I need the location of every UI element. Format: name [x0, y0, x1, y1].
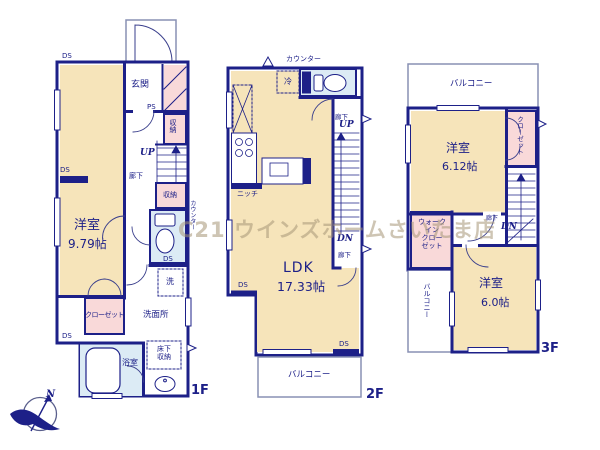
- f3-room2-size-label: 6.0帖: [481, 297, 510, 310]
- f2-ldk-label: LDK: [283, 260, 314, 276]
- f1-underfloor-label: 床下 収納: [148, 345, 180, 361]
- f3-vent-mark: [538, 120, 546, 128]
- f1-room-size-label: 9.79帖: [68, 238, 107, 252]
- f2-hall-lower-label: 廊下: [338, 252, 351, 259]
- f1-ds-mid-label: DS: [60, 166, 70, 174]
- f1-genkan-label: 玄関: [131, 80, 149, 90]
- bathtub: [86, 348, 120, 393]
- f2-balcony-label: バルコニー: [288, 371, 330, 381]
- f3-balcony-left-label: バルコニー: [423, 283, 431, 345]
- f2-up-label: UP: [339, 120, 354, 130]
- floor-plan-image: C21 ウインズホームさいたま店 DS 玄関 PS 収納 UP 廊下 DS 収納…: [0, 0, 600, 450]
- entrance-porch: [126, 20, 176, 64]
- f3-room2-label: 洋室: [479, 277, 503, 291]
- f3-room1-label: 洋室: [446, 142, 470, 156]
- f1-closet-label: クローゼット: [85, 311, 124, 319]
- f1-floor-label: 1F: [191, 384, 209, 399]
- f1-ds-bottom-label: DS: [62, 332, 72, 340]
- f1-bath-label: 浴室: [122, 358, 138, 367]
- f3-room1-size-label: 6.12帖: [442, 161, 478, 174]
- f1-vent-mark: [187, 344, 196, 352]
- f1-room-label: 洋室: [74, 219, 100, 234]
- f2-toilet-fixture: [314, 75, 346, 92]
- f1-laundry-label: 洗: [166, 277, 174, 286]
- f1-ds-toilet-label: DS: [163, 255, 173, 263]
- f2-niche-label: ニッチ: [237, 190, 258, 198]
- f3-hall-label: 廊下: [486, 216, 498, 223]
- f2-fridge-label: 冷: [284, 77, 292, 86]
- f2-dn-label: DN: [337, 234, 353, 244]
- f1-storage-upper-label: 収納: [169, 119, 177, 143]
- f3-closet-label: クローゼット: [515, 116, 522, 164]
- f1-washroom-label: 洗面所: [143, 311, 169, 321]
- f2-toilet-cabinet: [302, 72, 311, 94]
- f1-ds-duct: [60, 176, 88, 183]
- f1-shoe-area: [164, 65, 186, 111]
- f3-dn-label: DN: [501, 222, 517, 232]
- f2-floor-label: 2F: [366, 388, 384, 403]
- f1-up-label: UP: [140, 148, 155, 158]
- f1-hall-label: 廊下: [129, 172, 143, 180]
- f3-balcony-top-label: バルコニー: [450, 80, 492, 90]
- f2-ds-right-label: DS: [339, 340, 349, 348]
- f3-floor-label: 3F: [541, 342, 559, 357]
- f2-ds-duct-left: [231, 291, 257, 297]
- f3-wic-label: ウォーク イン クロー ゼット: [412, 218, 452, 250]
- f1-ds-top-label: DS: [62, 52, 72, 60]
- f1-counter-label: カウンター: [188, 200, 195, 250]
- f2-ds-duct-right: [333, 349, 359, 355]
- f1-storage-lower-label: 収納: [163, 191, 177, 199]
- f2-ldk-size-label: 17.33帖: [277, 280, 325, 294]
- f1-toilet-fixture: [155, 214, 175, 253]
- f2-counter-label: カウンター: [286, 55, 321, 63]
- f1-ps-label: PS: [147, 103, 156, 111]
- f2-ds-left-label: DS: [238, 281, 248, 289]
- washbasin: [155, 377, 175, 392]
- compass-north-label: N: [46, 389, 55, 401]
- floor1-plan: [55, 20, 197, 399]
- floor2-plan: [227, 57, 372, 397]
